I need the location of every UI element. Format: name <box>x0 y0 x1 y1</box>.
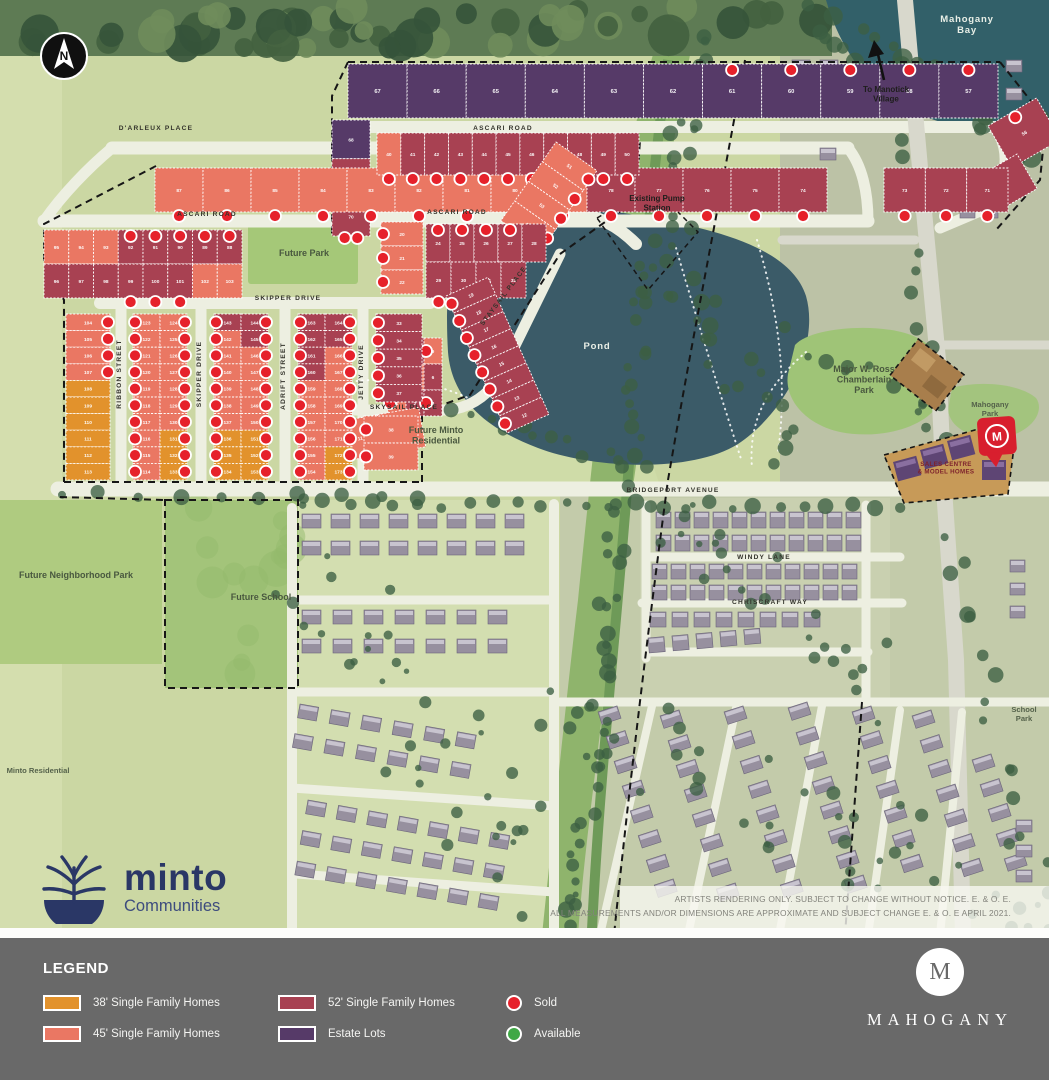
tree <box>826 786 840 800</box>
tree <box>582 502 590 510</box>
sold-dot <box>344 399 356 411</box>
tree <box>344 659 355 670</box>
lot-number: 92 <box>128 245 134 251</box>
lot-number: 153 <box>250 470 258 476</box>
house-roof <box>1011 607 1024 611</box>
tree <box>811 609 821 619</box>
sold-dot <box>210 316 222 328</box>
tree <box>444 402 459 417</box>
street-label: D'ARLEUX PLACE <box>119 125 193 132</box>
lot-block: 123122121120119118117116115114 <box>129 314 160 480</box>
tree <box>663 291 673 301</box>
tree <box>384 631 393 640</box>
street-label: BRIDGEPORT AVENUE <box>627 487 720 494</box>
tree <box>583 753 590 760</box>
lot-number: 24 <box>435 241 441 247</box>
house-roof <box>334 640 351 644</box>
lot-block: 104105106107108109110111112113 <box>66 314 114 480</box>
house-roof <box>790 536 803 540</box>
house-roof <box>489 611 506 615</box>
tree <box>528 431 537 440</box>
lot-number: 157 <box>307 420 315 426</box>
lot-number: 150 <box>250 420 258 426</box>
tree <box>824 6 843 25</box>
area-label: Future MintoResidential <box>409 425 464 446</box>
sold-dot <box>129 449 141 461</box>
tree <box>571 706 584 719</box>
lot-number: 50 <box>624 152 630 158</box>
tree <box>612 555 627 570</box>
tree <box>630 314 642 326</box>
tree <box>575 839 585 849</box>
sold-dot <box>339 232 351 244</box>
sold-dot <box>269 210 281 222</box>
lot-number: 135 <box>223 453 231 459</box>
lot-number: 131 <box>169 437 177 443</box>
lot-number: 76 <box>704 188 710 194</box>
tree <box>567 850 575 858</box>
forest-blob <box>556 5 585 34</box>
tree <box>473 710 485 722</box>
tree <box>980 697 989 706</box>
house-roof <box>1007 61 1021 65</box>
house-roof <box>786 565 799 569</box>
house-roof <box>748 565 761 569</box>
tree <box>640 460 654 474</box>
tree <box>629 297 638 306</box>
lot-number: 43 <box>458 152 464 158</box>
tree <box>915 809 928 822</box>
tree <box>941 533 949 541</box>
lot-number: 165 <box>334 337 342 343</box>
tree <box>896 801 905 810</box>
tree <box>712 539 719 546</box>
sold-dot <box>294 350 306 362</box>
house-roof <box>458 640 475 644</box>
tree <box>692 772 705 785</box>
tree <box>404 668 409 673</box>
house-roof <box>506 542 523 546</box>
legend-items: 38' Single Family Homes45' Single Family… <box>43 995 580 1042</box>
tree <box>800 788 808 796</box>
forest-blob <box>235 38 254 57</box>
sold-dot <box>480 224 492 236</box>
lot-number: 57 <box>965 89 971 95</box>
lot-number: 140 <box>223 370 231 376</box>
tree <box>703 360 712 369</box>
house-roof <box>767 565 780 569</box>
tree <box>385 585 395 595</box>
tree <box>867 500 883 516</box>
legend-bar: LEGEND 38' Single Family Homes45' Single… <box>0 938 1049 1080</box>
tree <box>851 685 862 696</box>
sold-dot <box>962 64 974 76</box>
street-label: ASCARI ROAD <box>473 125 533 132</box>
tree <box>858 23 869 34</box>
legend-item-label: Sold <box>534 997 557 1009</box>
lot-number: 139 <box>223 387 231 393</box>
house-roof <box>477 542 494 546</box>
sold-dot <box>179 333 191 345</box>
house-roof <box>390 515 407 519</box>
lot-number: 124 <box>169 320 177 326</box>
legend-item-label: 38' Single Family Homes <box>93 997 220 1009</box>
legend-item-label: 45' Single Family Homes <box>93 1028 220 1040</box>
sold-dot <box>377 276 389 288</box>
sold-dot <box>210 399 222 411</box>
sold-dot <box>344 366 356 378</box>
tree <box>959 606 975 622</box>
lot-number: 30 <box>461 278 467 284</box>
sold-dot <box>294 449 306 461</box>
sold-dot <box>129 366 141 378</box>
house-roof <box>805 565 818 569</box>
tree <box>607 447 616 456</box>
sold-dot <box>179 416 191 428</box>
tree <box>376 491 387 502</box>
lot-block: 144145146147148149150151152153 <box>241 314 272 480</box>
sold-dot <box>149 230 161 242</box>
tree <box>744 498 760 514</box>
legend-column: 52' Single Family HomesEstate Lots <box>278 995 506 1042</box>
sold-dot <box>605 210 617 222</box>
sold-dot <box>344 316 356 328</box>
tree <box>732 381 744 393</box>
house-roof <box>847 513 860 517</box>
tree <box>1006 791 1020 805</box>
house-roof <box>1011 584 1024 588</box>
house-roof <box>1007 89 1021 93</box>
tree <box>677 118 686 127</box>
lot-number: 84 <box>320 188 326 194</box>
tree <box>592 597 606 611</box>
north-letter: N <box>60 49 69 63</box>
disclaimer-line-2: ALL MEASUREMENTS AND/OR DIMENSIONS ARE A… <box>451 907 1011 921</box>
tree <box>723 565 731 573</box>
lot-number: 96 <box>54 279 60 285</box>
lot-number: 36 <box>396 374 402 380</box>
house-block <box>820 148 836 160</box>
lot-number: 82 <box>416 188 422 194</box>
sold-dot <box>129 466 141 478</box>
lot-number: 136 <box>223 437 231 443</box>
house-roof <box>458 611 475 615</box>
house-roof <box>824 586 837 590</box>
tree <box>910 322 924 336</box>
lot-number: 167 <box>334 370 342 376</box>
lot-number: 40 <box>386 152 392 158</box>
sold-dot <box>413 210 425 222</box>
lot-number: 163 <box>307 320 315 326</box>
tree <box>804 353 812 361</box>
house-roof <box>303 542 320 546</box>
sold-dot <box>432 224 444 236</box>
sold-dot <box>224 230 236 242</box>
forest-blob <box>99 23 123 47</box>
tree <box>683 147 697 161</box>
sold-dot <box>372 370 384 382</box>
sold-dot <box>260 333 272 345</box>
tree <box>877 858 884 865</box>
tree <box>739 818 749 828</box>
lot-number: 123 <box>142 320 150 326</box>
lot-number: 118 <box>143 403 151 409</box>
tree <box>1006 764 1018 776</box>
tree <box>563 498 571 506</box>
legend-item-orange: 38' Single Family Homes <box>43 995 278 1011</box>
tree <box>977 650 989 662</box>
legend-item-sold: Sold <box>506 995 580 1011</box>
lot-number: 132 <box>169 453 177 459</box>
tree <box>570 823 580 833</box>
lot-number: 158 <box>307 403 315 409</box>
lot-number: 68 <box>348 137 354 143</box>
lot-number: 98 <box>103 279 109 285</box>
house-roof <box>361 542 378 546</box>
forest-blob <box>598 16 618 36</box>
tree <box>252 492 265 505</box>
tree <box>762 392 773 403</box>
forest-blob <box>204 2 230 28</box>
lot-number: 62 <box>670 89 676 95</box>
lot-number: 146 <box>250 354 258 360</box>
sold-dot <box>431 173 443 185</box>
sold-dot <box>199 230 211 242</box>
sold-dot <box>981 210 993 222</box>
tree <box>464 497 476 509</box>
house-roof <box>847 536 860 540</box>
tree <box>671 749 683 761</box>
tree <box>588 807 601 820</box>
street-label: WINDY LANE <box>737 554 791 561</box>
tree <box>318 630 325 637</box>
sold-dot <box>294 316 306 328</box>
sold-dot <box>129 333 141 345</box>
lot-number: 112 <box>84 453 92 459</box>
sold-dot <box>260 350 272 362</box>
tree <box>603 549 613 559</box>
tree <box>1015 832 1025 842</box>
tree <box>914 248 923 257</box>
house-roof <box>651 613 665 617</box>
tree <box>601 748 612 759</box>
lot-number: 80 <box>512 188 518 194</box>
tree <box>686 271 702 287</box>
tree <box>709 295 722 308</box>
tree <box>819 32 831 44</box>
lot-number: 171 <box>334 437 342 443</box>
legend-item-label: Estate Lots <box>328 1028 386 1040</box>
house-roof <box>733 513 746 517</box>
sold-dot <box>179 350 191 362</box>
sold-dot <box>129 433 141 445</box>
forest-blob <box>329 29 348 48</box>
tree <box>776 502 786 512</box>
sold-dot <box>210 433 222 445</box>
sold-dot <box>179 449 191 461</box>
lot-number: 67 <box>374 89 380 95</box>
forest-blob <box>138 15 176 53</box>
tree <box>636 788 644 796</box>
house-roof <box>448 542 465 546</box>
lot-block: 143142141140139138137136135134 <box>210 314 241 480</box>
tree <box>702 317 719 334</box>
tree <box>451 807 463 819</box>
lot-number: 34 <box>396 338 402 344</box>
house-block <box>1016 820 1032 882</box>
tree <box>889 846 901 858</box>
lot-block: 202122 <box>377 222 423 294</box>
house-roof <box>695 536 708 540</box>
lot-number: 162 <box>307 337 315 343</box>
mahogany-monogram: M <box>916 948 964 996</box>
house-roof <box>506 515 523 519</box>
tree <box>921 423 931 433</box>
lot-number: 141 <box>223 354 231 360</box>
tree <box>365 646 371 652</box>
sold-dot <box>179 383 191 395</box>
house-roof <box>303 640 320 644</box>
lot-number: 64 <box>552 89 559 95</box>
lot-number: 120 <box>142 370 150 376</box>
tree <box>668 212 678 222</box>
sold-dot <box>360 451 372 463</box>
tree <box>979 716 987 724</box>
tree <box>613 455 623 465</box>
sold-dot <box>179 366 191 378</box>
lot-number: 41 <box>410 152 416 158</box>
tree <box>648 234 663 249</box>
lot-number: 111 <box>84 437 92 443</box>
tree <box>603 717 612 726</box>
tree <box>535 801 546 812</box>
lot-number: 70 <box>348 215 354 221</box>
tree <box>818 354 834 370</box>
tree <box>690 502 696 508</box>
tree <box>563 435 572 444</box>
sold-dot <box>260 316 272 328</box>
sold-dot <box>125 296 137 308</box>
house-roof <box>334 611 351 615</box>
tree <box>744 352 758 366</box>
lot-number: 83 <box>368 188 374 194</box>
lot-number: 29 <box>436 278 442 284</box>
tree <box>702 495 716 509</box>
lot-number: 86 <box>224 188 230 194</box>
sold-dot <box>260 399 272 411</box>
tree <box>513 496 524 507</box>
tree <box>436 503 446 513</box>
disclaimer-line-1: ARTISTS RENDERING ONLY. SUBJECT TO CHANG… <box>451 893 1011 907</box>
sold-dot <box>372 317 384 329</box>
house-roof <box>448 515 465 519</box>
sold-dot <box>407 173 419 185</box>
lot-block: 4041424344454647484950 <box>377 133 639 185</box>
lot-number: 130 <box>169 420 177 426</box>
lot-number: 108 <box>84 387 92 393</box>
forest-blob <box>284 9 312 37</box>
lot-number: 159 <box>307 387 315 393</box>
tree <box>644 500 657 513</box>
sold-dot <box>351 232 363 244</box>
tree <box>639 348 651 360</box>
tree <box>534 719 547 732</box>
tree <box>716 547 727 558</box>
tree <box>699 574 710 585</box>
tree <box>959 556 971 568</box>
lot-block: 2425262728 <box>426 224 546 262</box>
lot-number: 160 <box>307 370 315 376</box>
sold-dot <box>372 334 384 346</box>
lot-number: 25 <box>459 241 465 247</box>
tree <box>882 638 893 649</box>
sold-dot <box>102 350 114 362</box>
tree <box>379 678 385 684</box>
lot-number: 121 <box>142 354 150 360</box>
lot-number: 127 <box>169 370 177 376</box>
sold-dot <box>129 416 141 428</box>
tree <box>820 642 829 651</box>
tree <box>492 872 502 882</box>
tree <box>719 384 730 395</box>
house-roof <box>1017 846 1031 850</box>
tree <box>649 263 657 271</box>
lot-number: 85 <box>272 188 278 194</box>
lot-number: 95 <box>54 245 60 251</box>
sold-dot <box>377 228 389 240</box>
legend-column: 38' Single Family Homes45' Single Family… <box>43 995 278 1042</box>
sold-dot <box>456 224 468 236</box>
lot-number: 75 <box>752 188 758 194</box>
tree <box>800 501 811 512</box>
tree <box>419 696 431 708</box>
sold-dot <box>383 173 395 185</box>
tree <box>604 671 617 684</box>
mahogany-wordmark: MAHOGANY <box>852 1010 1028 1030</box>
tree <box>91 485 105 499</box>
house-roof <box>673 613 687 617</box>
tree <box>895 503 905 513</box>
sold-dot <box>294 416 306 428</box>
tree <box>415 765 421 771</box>
sold-dot <box>210 366 222 378</box>
sold-dot <box>210 449 222 461</box>
lot-number: 156 <box>307 437 315 443</box>
tree <box>634 261 645 272</box>
sold-dot <box>344 383 356 395</box>
lot-number: 104 <box>84 320 92 326</box>
mahogany-logo: M MAHOGANY <box>852 948 1028 1030</box>
sold-dot <box>129 383 141 395</box>
tree <box>768 458 779 469</box>
house-roof <box>1011 561 1024 565</box>
tree <box>638 434 645 441</box>
lot-number: 125 <box>169 337 177 343</box>
water-label: Pond <box>584 341 611 352</box>
house-roof <box>396 611 413 615</box>
tree <box>387 500 399 512</box>
lot-number: 94 <box>78 245 84 251</box>
future-neighborhood-park-zone <box>0 500 162 664</box>
lot-number: 107 <box>84 370 92 376</box>
house-roof <box>821 149 835 153</box>
tree <box>906 842 914 850</box>
tree <box>809 652 821 664</box>
tree <box>488 415 496 423</box>
house-roof <box>790 513 803 517</box>
house-roof <box>672 586 685 590</box>
lot-number: 93 <box>103 245 109 251</box>
